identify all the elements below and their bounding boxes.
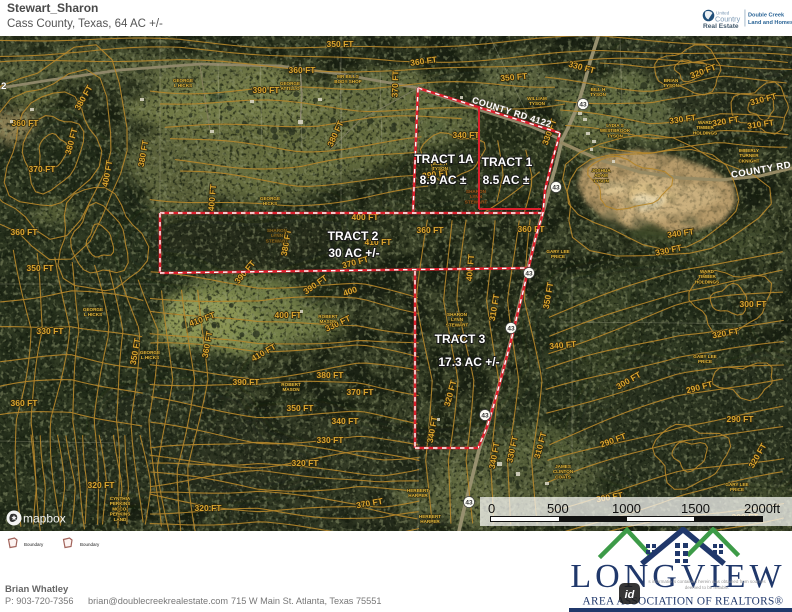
svg-text:BRIANTYSON: BRIANTYSON: [663, 78, 680, 88]
svg-text:IMBERLYTURNERCKNIGHT: IMBERLYTURNERCKNIGHT: [739, 148, 760, 163]
svg-text:330 FT: 330 FT: [37, 326, 65, 336]
svg-text:MR BILLSBODY SHOP: MR BILLSBODY SHOP: [334, 74, 361, 84]
svg-text:290 FT: 290 FT: [727, 414, 755, 424]
svg-text:GEORGEL HICKS: GEORGEL HICKS: [173, 78, 193, 88]
svg-text:TRACT 1: TRACT 1: [482, 155, 533, 169]
svg-text:43: 43: [481, 412, 489, 419]
svg-text:Land and Homes: Land and Homes: [748, 20, 792, 26]
svg-text:370 FT: 370 FT: [390, 69, 401, 97]
svg-text:360 FT: 360 FT: [11, 227, 39, 237]
svg-text:400 FT: 400 FT: [275, 310, 303, 320]
svg-text:BILL HTYSON: BILL HTYSON: [590, 87, 607, 97]
svg-text:deemed to be reliable.: deemed to be reliable.: [685, 585, 730, 590]
svg-text:370 FT: 370 FT: [29, 164, 57, 174]
svg-text:380 FT: 380 FT: [317, 370, 345, 380]
svg-text:330 FT: 330 FT: [317, 435, 345, 445]
svg-text:LONGVIEW: LONGVIEW: [570, 558, 785, 595]
svg-text:WILLIAMTYSON: WILLIAMTYSON: [527, 96, 547, 106]
svg-text:320 FT: 320 FT: [292, 458, 320, 468]
svg-text:Double Creek: Double Creek: [748, 13, 785, 19]
svg-text:360 FT: 360 FT: [289, 65, 317, 75]
svg-text:43: 43: [552, 184, 560, 191]
svg-text:8.9 AC ±: 8.9 AC ±: [420, 173, 467, 187]
svg-text:320 FT: 320 FT: [88, 480, 116, 490]
svg-text:43: 43: [525, 270, 533, 277]
svg-text:ROBERTMASON: ROBERTMASON: [318, 314, 338, 324]
svg-text:mapbox: mapbox: [23, 512, 66, 526]
svg-text:17.3 AC +/-: 17.3 AC +/-: [438, 355, 499, 369]
svg-text:8.5 AC ±: 8.5 AC ±: [483, 173, 530, 187]
svg-text:360 FT: 360 FT: [11, 398, 39, 408]
svg-text:Real Estate: Real Estate: [703, 23, 739, 30]
svg-text:GEORGEATTILLO: GEORGEATTILLO: [280, 81, 300, 91]
svg-text:TRACT 2: TRACT 2: [328, 229, 379, 243]
svg-text:TRACT 3: TRACT 3: [435, 332, 486, 346]
svg-text:300 FT: 300 FT: [740, 299, 768, 309]
svg-text:id: id: [625, 589, 635, 601]
svg-text:43: 43: [465, 499, 473, 506]
svg-text:360 FT: 360 FT: [417, 225, 445, 235]
svg-text:TRACT 1A: TRACT 1A: [414, 152, 474, 166]
svg-text:s informatio is contained here: s informatio is contained herein was obt…: [648, 579, 766, 584]
svg-text:350 FT: 350 FT: [27, 263, 55, 273]
svg-text:30 AC +/-: 30 AC +/-: [328, 246, 379, 260]
svg-text:2: 2: [1, 81, 7, 92]
svg-text:390 FT: 390 FT: [233, 377, 261, 387]
svg-text:GEORGEL HICKS: GEORGEL HICKS: [83, 307, 103, 317]
svg-text:370 FT: 370 FT: [347, 387, 375, 397]
svg-text:340 FT: 340 FT: [453, 130, 481, 140]
svg-text:390 FT: 390 FT: [253, 85, 281, 95]
svg-text:350 FT: 350 FT: [327, 39, 355, 49]
svg-text:350 FT: 350 FT: [287, 403, 315, 413]
svg-text:ROBERTMASON: ROBERTMASON: [281, 382, 301, 392]
svg-text:360 FT: 360 FT: [518, 224, 546, 234]
svg-text:GEORGEL HICKS: GEORGEL HICKS: [140, 350, 160, 360]
svg-text:320 FT: 320 FT: [195, 503, 223, 513]
svg-text:43: 43: [507, 325, 515, 332]
svg-text:HERBERTHARPER: HERBERTHARPER: [407, 488, 429, 498]
svg-text:43: 43: [579, 101, 587, 108]
svg-text:GEORGEHICKS: GEORGEHICKS: [260, 196, 280, 206]
svg-text:JAMESCLINTONCOATS: JAMESCLINTONCOATS: [553, 464, 574, 479]
svg-text:HERBERTHARPER: HERBERTHARPER: [419, 514, 441, 524]
svg-text:AREA ASSOCIATION OF REALTORS®: AREA ASSOCIATION OF REALTORS®: [583, 596, 784, 608]
svg-text:360 FT: 360 FT: [12, 118, 40, 128]
svg-text:340 FT: 340 FT: [332, 416, 360, 426]
